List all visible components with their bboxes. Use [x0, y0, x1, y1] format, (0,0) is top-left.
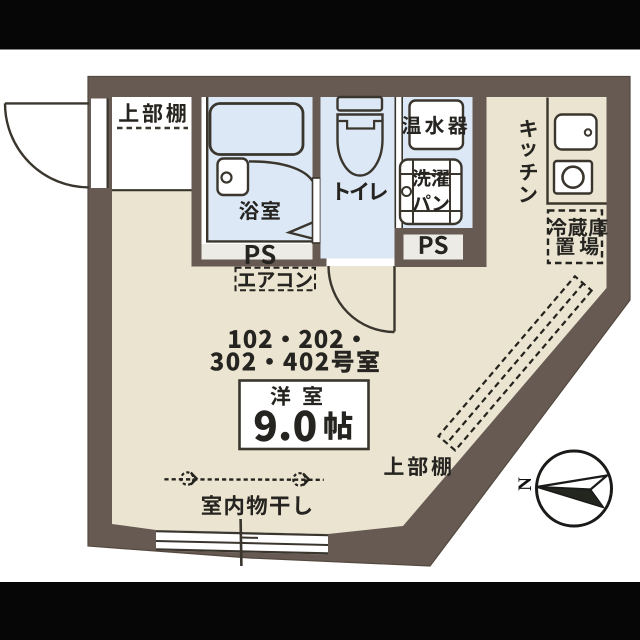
svg-text:N: N [515, 477, 536, 491]
